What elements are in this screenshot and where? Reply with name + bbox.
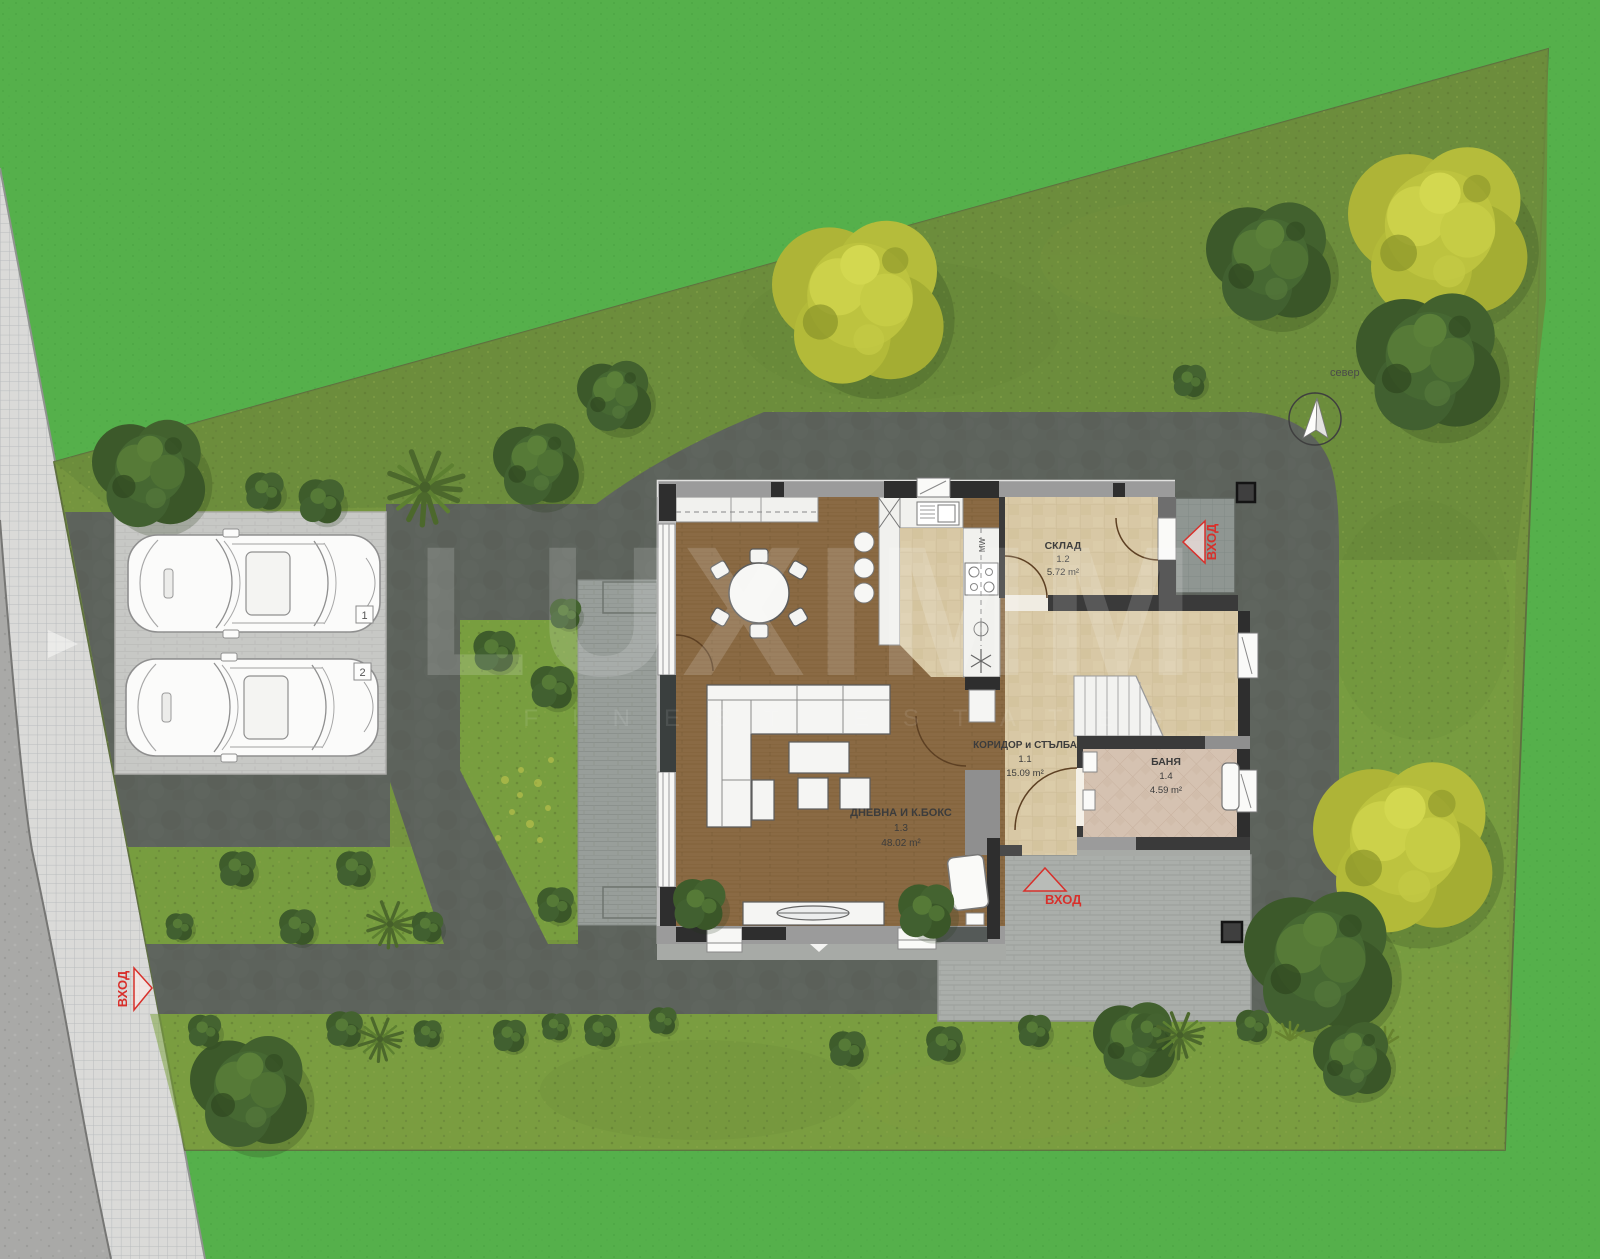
svg-text:15.09 m²: 15.09 m²	[1006, 768, 1044, 779]
svg-text:КОРИДОР и СТЪЛБА: КОРИДОР и СТЪЛБА	[973, 740, 1077, 751]
svg-text:1.1: 1.1	[1018, 754, 1031, 765]
svg-text:1.4: 1.4	[1159, 771, 1172, 782]
svg-text:FINEST ESTATES: FINEST ESTATES	[523, 705, 1196, 732]
svg-text:48.02 m²: 48.02 m²	[881, 838, 921, 849]
svg-text:ВХОД: ВХОД	[115, 970, 130, 1007]
svg-text:север: север	[1330, 367, 1360, 379]
svg-text:ВХОД: ВХОД	[1204, 523, 1219, 560]
svg-text:4.59 m²: 4.59 m²	[1150, 785, 1182, 796]
svg-text:1: 1	[361, 610, 367, 622]
svg-text:1.3: 1.3	[894, 823, 908, 834]
svg-text:ВХОД: ВХОД	[1045, 892, 1082, 907]
svg-text:LUXIMM: LUXIMM	[415, 509, 1205, 715]
svg-text:ДНЕВНА И К.БОКС: ДНЕВНА И К.БОКС	[850, 807, 952, 819]
svg-text:БАНЯ: БАНЯ	[1151, 756, 1181, 768]
svg-text:2: 2	[359, 667, 365, 679]
